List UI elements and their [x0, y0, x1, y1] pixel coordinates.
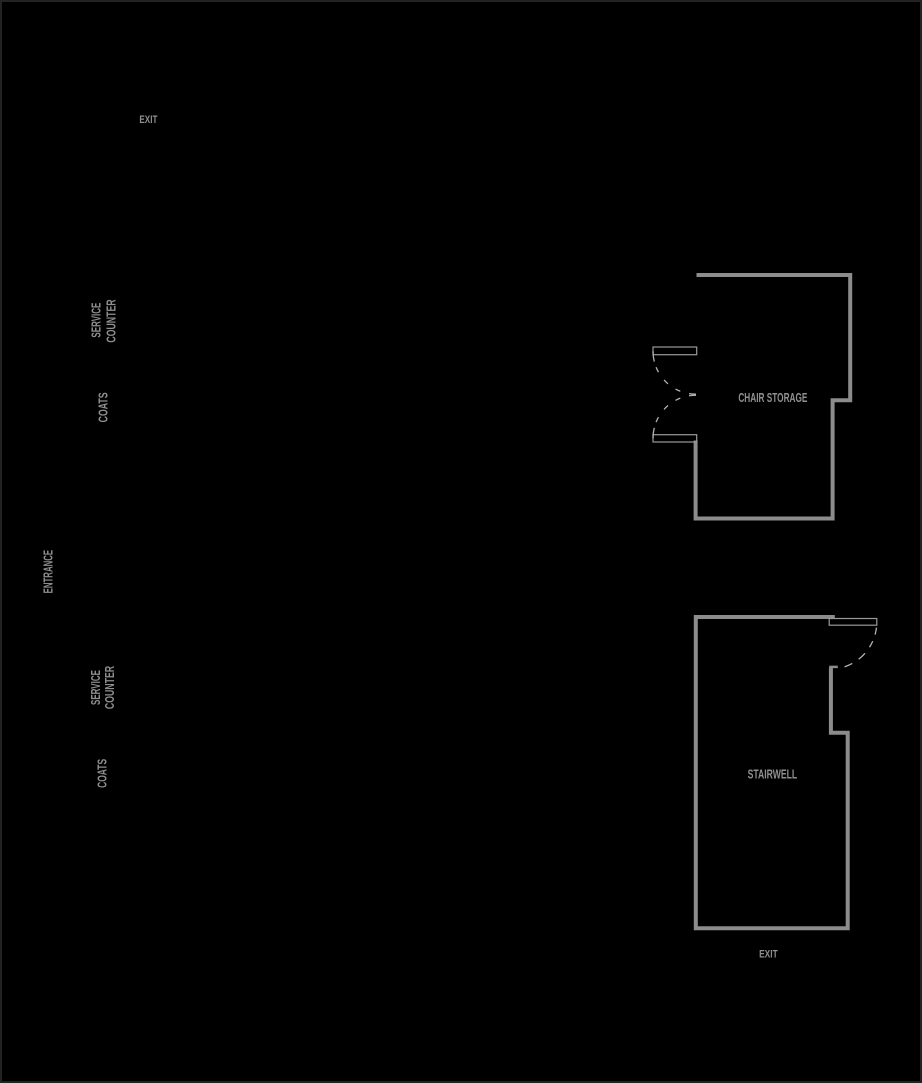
svg-text:SERVICE: SERVICE [90, 303, 104, 338]
svg-text:COATS: COATS [97, 392, 111, 422]
svg-text:COATS: COATS [96, 759, 110, 788]
svg-text:CHAIR STORAGE: CHAIR STORAGE [738, 391, 807, 405]
svg-text:COUNTER: COUNTER [103, 666, 117, 709]
svg-text:EXIT: EXIT [139, 114, 157, 126]
svg-text:EXIT: EXIT [759, 949, 778, 961]
svg-text:STAIRWELL: STAIRWELL [748, 768, 798, 782]
svg-text:ENTRANCE: ENTRANCE [41, 550, 55, 594]
svg-text:COUNTER: COUNTER [104, 299, 118, 342]
svg-text:SERVICE: SERVICE [89, 670, 103, 705]
